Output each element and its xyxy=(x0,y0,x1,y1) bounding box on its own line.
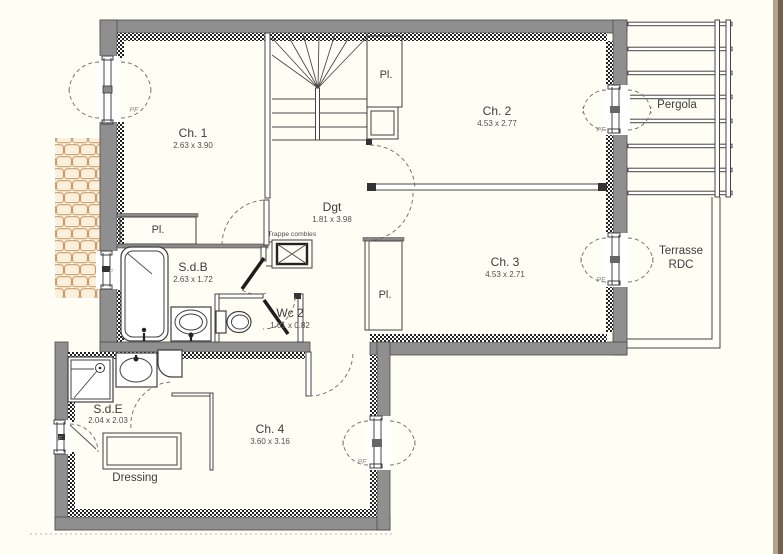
room-dims-ch4: 3.60 x 3.16 xyxy=(250,437,290,446)
closet-label-stairs: Pl. xyxy=(380,69,393,81)
floor-plan-drawing: Ch. 1 2.63 x 3.90 Ch. 2 4.53 x 2.77 Ch. … xyxy=(0,0,783,554)
door-ch2 xyxy=(366,139,415,190)
room-label-ch1: Ch. 1 xyxy=(179,126,208,140)
closet-label-ch3: Pl. xyxy=(379,289,392,301)
room-dims-ch3: 4.53 x 2.71 xyxy=(485,270,525,279)
pf-label-ch3: PF xyxy=(597,277,607,284)
room-label-ch4: Ch. 4 xyxy=(256,422,285,436)
room-dims-wc2: 1.61 x 0.82 xyxy=(270,321,310,330)
terrasse-label-line2: RDC xyxy=(669,259,694,271)
page-edge-stripe xyxy=(773,0,783,554)
closet-label-sdb: Pl. xyxy=(152,224,165,236)
sink-sde xyxy=(116,353,157,387)
corner-unit-sde xyxy=(158,350,182,377)
partition-ch2-ch3 xyxy=(367,183,607,191)
dressing-label: Dressing xyxy=(112,472,157,484)
staircase xyxy=(265,33,367,198)
room-dims-sde: 2.04 x 2.03 xyxy=(88,416,128,425)
window-pf-ch4 xyxy=(343,416,415,470)
pf-label-ch1: PF xyxy=(130,107,140,114)
door-ch1 xyxy=(222,200,269,245)
attic-hatch xyxy=(266,240,312,268)
terrace-outline xyxy=(627,197,720,348)
pergola-label: Pergola xyxy=(657,99,697,111)
room-label-ch2: Ch. 2 xyxy=(483,104,512,118)
closet-ch3 xyxy=(363,238,404,331)
room-label-wc2: Wc 2 xyxy=(276,306,304,320)
room-dims-ch1: 2.63 x 3.90 xyxy=(173,141,213,150)
window-pf-ch3 xyxy=(581,233,653,287)
shower-sde xyxy=(68,357,113,402)
roof-tiles xyxy=(55,138,101,298)
f-label-sde: F xyxy=(58,436,63,443)
bathtub xyxy=(121,247,168,341)
door-sde xyxy=(131,382,170,428)
room-dims-sdb: 2.63 x 1.72 xyxy=(173,275,213,284)
closet-stairs xyxy=(367,36,402,139)
sink-sdb xyxy=(171,307,211,341)
room-dims-dgt: 1.81 x 3.98 xyxy=(312,215,352,224)
f-label-sdb: F xyxy=(109,269,114,276)
room-label-ch3: Ch. 3 xyxy=(491,255,520,269)
terrasse-label-line1: Terrasse xyxy=(659,245,703,257)
toilet-wc2 xyxy=(216,311,251,333)
room-label-dgt: Dgt xyxy=(323,200,342,214)
window-pf-ch1 xyxy=(69,56,151,124)
door-ch4 xyxy=(306,352,353,396)
door-ch3 xyxy=(365,193,413,241)
pf-label-ch2: PF xyxy=(597,127,607,134)
room-label-sdb: S.d.B xyxy=(178,260,207,274)
floor-plan-page: Ch. 1 2.63 x 3.90 Ch. 2 4.53 x 2.77 Ch. … xyxy=(0,0,783,554)
room-dims-ch2: 4.53 x 2.77 xyxy=(477,119,517,128)
pf-label-ch4: PF xyxy=(358,459,368,466)
closet-sdb xyxy=(117,214,268,249)
attic-hatch-label: Trappe combles xyxy=(268,231,317,238)
room-label-sde: S.d.E xyxy=(93,402,122,416)
window-pf-ch2 xyxy=(583,85,651,135)
door-sdb xyxy=(242,258,266,294)
